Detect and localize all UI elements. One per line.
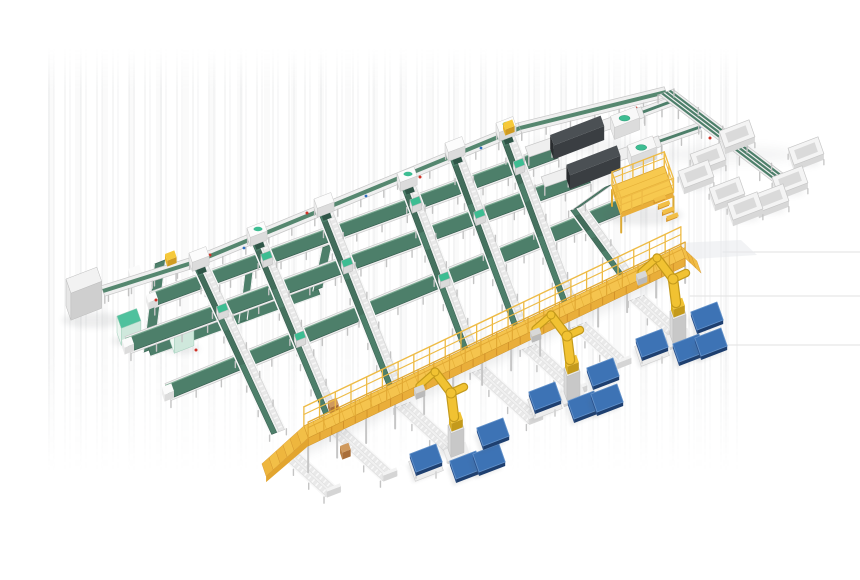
top-infeed-line (101, 87, 668, 303)
sensor-red (709, 137, 712, 140)
sensor-red (195, 349, 198, 352)
sensor-blue (480, 147, 483, 150)
chute-bins (678, 120, 824, 226)
render-canvas (0, 0, 860, 580)
pallet-on-stand (407, 444, 444, 483)
pallet-on-stand (526, 382, 563, 421)
camera-dome (636, 145, 647, 151)
pallet-on-stand (633, 329, 670, 368)
chute-bin (788, 137, 824, 171)
robot-elbow-joint (668, 274, 678, 284)
dws-camera-head (611, 107, 640, 140)
camera-dome (619, 115, 630, 121)
sorting-facility-illustration (0, 0, 860, 580)
sensor-red (155, 299, 158, 302)
sensor-blue (243, 247, 246, 250)
sensor-blue (365, 195, 368, 198)
pallet (474, 418, 509, 453)
sensor-red (306, 212, 309, 215)
chute-bin (678, 160, 714, 194)
sensor-red (419, 176, 422, 179)
robot-elbow-joint (446, 388, 456, 398)
robot-elbow-joint (562, 331, 572, 341)
